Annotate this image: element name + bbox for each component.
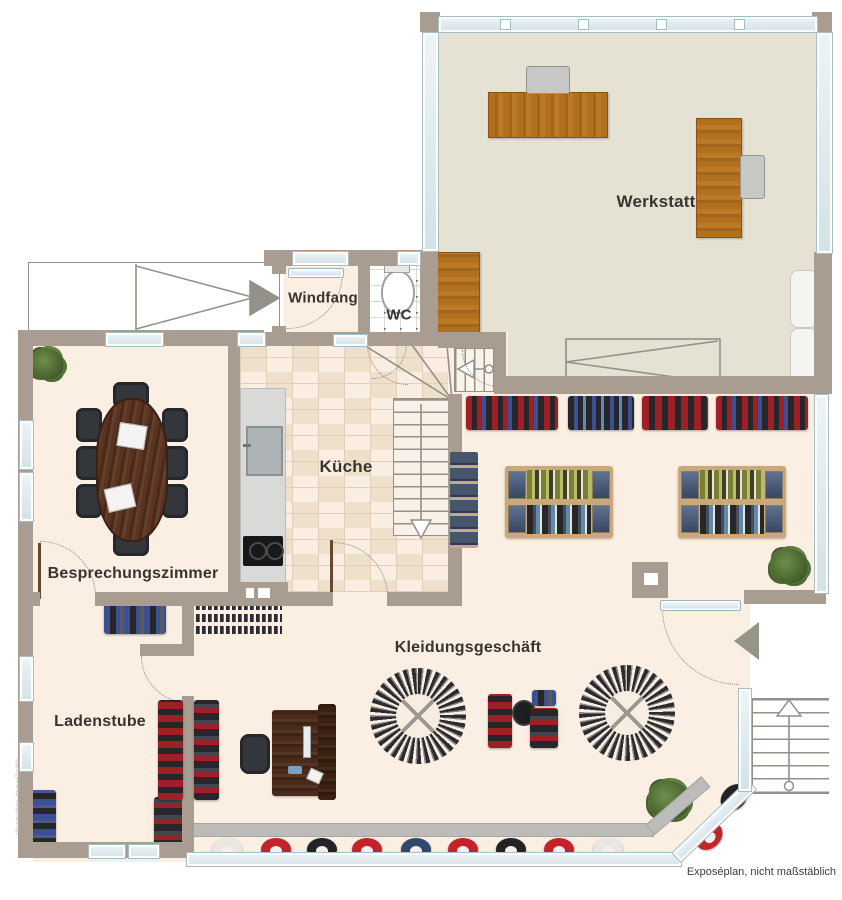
gondola-box: [765, 505, 783, 533]
wall-clothes-rack-1: [466, 396, 558, 430]
exterior-stairs: [752, 698, 829, 794]
room-label-werkstatt: Werkstatt: [617, 192, 696, 212]
window-mullion: [734, 19, 745, 30]
room-label-ladenstube: Ladenstube: [54, 713, 146, 731]
kitchen-door-leaf: [330, 540, 333, 598]
gondola-rack-1: [505, 466, 613, 538]
shoe-shelf-row: [196, 626, 282, 634]
shop-plant-right: [770, 548, 808, 584]
watermark: Illustration ImmoGrafik: [15, 758, 22, 835]
shop-wall-shelf: [450, 452, 478, 548]
gondola-box: [592, 505, 610, 533]
window-mullion: [656, 19, 667, 30]
gondola-box: [592, 471, 610, 499]
wall-ladenstube-jog: [140, 644, 194, 656]
conference-table: [96, 398, 168, 542]
kitchen-window-top: [237, 332, 266, 347]
room-label-windfang: Windfang: [288, 290, 358, 307]
main-staircase: [393, 398, 452, 536]
shop-window-right: [814, 394, 829, 594]
room-label-kleidungsgeschaeft: Kleidungsgeschäft: [395, 639, 542, 657]
desk-monitor: [303, 726, 311, 758]
cashier-chair: [240, 734, 270, 774]
shoe-shelf-row: [196, 614, 282, 622]
workbench-chair-2: [740, 155, 765, 199]
wall-werkstatt-right: [814, 252, 832, 394]
display-shelf: [190, 823, 654, 837]
shop-pillar-core: [644, 573, 658, 585]
gondola-clothes-bottom: [527, 505, 591, 534]
wall-stair-jog: [494, 348, 506, 394]
windfang-window-top: [292, 251, 349, 266]
gondola-box: [681, 505, 699, 533]
center-rack-black: [530, 708, 558, 748]
wall-band-c: [387, 592, 462, 606]
room-label-kueche: Küche: [320, 457, 373, 477]
storefront-window-right: [738, 688, 752, 792]
wall-clothes-rack-4: [716, 396, 808, 430]
shop-rack-wall-right: [194, 700, 219, 800]
wall-stair-hall: [438, 332, 506, 348]
counter-stub-box-1: [246, 588, 254, 598]
center-rack-red: [488, 694, 512, 748]
room-label-besprechungszimmer: Besprechungszimmer: [48, 565, 219, 583]
ladenstube-window-bottom-1: [88, 844, 126, 859]
wall-ladenstube-right-lower: [182, 696, 194, 842]
ladenstube-window-bottom-2: [128, 844, 160, 859]
wall-meeting-kitchen: [228, 346, 240, 604]
round-clothes-rack-1: [370, 668, 466, 764]
round-clothes-rack-2: [579, 665, 675, 761]
wall-ladenstube-right-upper: [182, 604, 194, 648]
wall-werkstatt-bottom: [506, 376, 832, 394]
wall-clothes-rack-2: [568, 396, 634, 430]
meeting-room-door-leaf: [38, 543, 41, 599]
werkstatt-window-top-band: [438, 16, 818, 33]
cooktop-burner-right: [266, 542, 284, 560]
werkstatt-open-door: [432, 252, 480, 334]
ladenstube-rack-wall-left: [158, 700, 183, 800]
window-mullion: [578, 19, 589, 30]
gondola-clothes-top: [527, 470, 591, 499]
wall-windfang-left-upper: [272, 262, 286, 274]
shop-entrance-door: [660, 600, 741, 611]
werkstatt-window-left: [422, 32, 439, 252]
meeting-window-left-1: [19, 420, 34, 470]
ladenstube-window-left-1: [19, 656, 34, 702]
center-rack-navy: [532, 690, 556, 706]
floor-plan: Werkstatt Windfang WC Küche Besprechungs…: [0, 0, 842, 900]
gondola-box: [508, 505, 526, 533]
gondola-clothes-bottom: [700, 505, 764, 534]
gondola-clothes-top: [700, 470, 764, 499]
wc-window-top: [397, 251, 421, 266]
cooktop-burner-left: [249, 542, 267, 560]
gondola-rack-2: [678, 466, 786, 538]
meeting-window-top: [105, 332, 164, 347]
gondola-box: [508, 471, 526, 499]
window-below-windfang: [333, 334, 368, 347]
storefront-window-bottom: [186, 852, 682, 867]
cashier-desk-wing: [318, 704, 336, 800]
window-mullion: [500, 19, 511, 30]
meeting-window-left-2: [19, 472, 34, 522]
shop-entrance-arrow-icon: [734, 622, 759, 660]
wall-clothes-rack-3: [642, 396, 708, 430]
desk-keyboard: [288, 766, 302, 774]
kitchen-faucet: [243, 444, 251, 447]
wall-band-b: [95, 592, 333, 606]
workbench-vertical: [696, 118, 742, 238]
werkstatt-window-right: [816, 32, 833, 254]
table-document-1: [116, 422, 147, 450]
wall-corner-top-left: [420, 12, 440, 32]
footer-note: Exposéplan, nicht maßstäblich: [687, 866, 836, 878]
kitchen-sink: [246, 426, 283, 476]
wall-windfang-wc-divider: [358, 252, 370, 336]
room-label-wc: WC: [386, 307, 411, 324]
counter-stub-box-2: [258, 588, 270, 598]
meeting-plant: [30, 348, 64, 380]
windfang-entrance-door: [288, 268, 344, 278]
workbench-horizontal: [488, 92, 608, 138]
workbench-chair-1: [526, 66, 570, 94]
gondola-box: [681, 471, 699, 499]
entrance-ramp: [28, 262, 280, 334]
gondola-box: [765, 471, 783, 499]
